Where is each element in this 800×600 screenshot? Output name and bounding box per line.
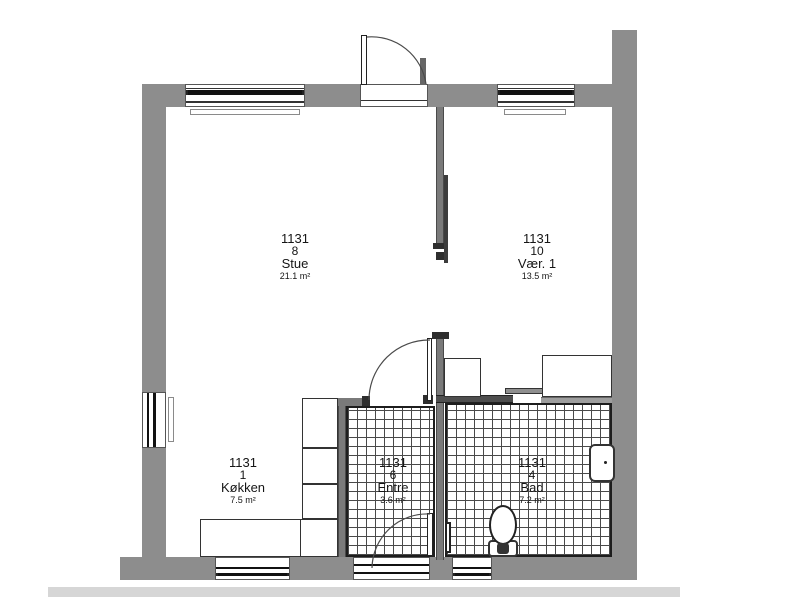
toilet-flush-knob bbox=[497, 543, 509, 554]
wall-right bbox=[612, 30, 637, 580]
entrance-door-leaf bbox=[427, 513, 433, 556]
balcony-door-opening bbox=[360, 84, 428, 107]
wall-entre-bad bbox=[436, 339, 444, 560]
window-stue-top bbox=[185, 84, 305, 107]
bad-door-leaf bbox=[445, 522, 451, 553]
stue-door-arc bbox=[369, 340, 430, 400]
radiator-vaer1 bbox=[504, 109, 566, 115]
wall-cap-center bbox=[432, 332, 449, 339]
wall-entre-left bbox=[338, 398, 346, 557]
room-name: Stue bbox=[245, 257, 345, 271]
kitchen-cabinet-3 bbox=[302, 484, 338, 519]
floor-plan-canvas: 1131 8 Stue 21.1 m² 1131 10 Vær. 1 13.5 … bbox=[0, 0, 800, 600]
sliding-door-leaf-stue-vaer1 bbox=[444, 175, 448, 263]
room-label-vaer1: 1131 10 Vær. 1 13.5 m² bbox=[487, 232, 587, 281]
window-vaer1-top bbox=[497, 84, 575, 107]
balcony-door-arc bbox=[367, 37, 426, 84]
window-left bbox=[142, 392, 166, 448]
room-area: 13.5 m² bbox=[487, 271, 587, 281]
room-area: 7.5 m² bbox=[193, 495, 293, 505]
toilet-bowl bbox=[489, 505, 517, 545]
wall-cap-entre-door bbox=[362, 396, 370, 406]
room-label-stue: 1131 8 Stue 21.1 m² bbox=[245, 232, 345, 281]
wall-stue-vaer1 bbox=[436, 107, 444, 246]
ground-strip bbox=[48, 587, 680, 597]
balcony-door-frame-post bbox=[420, 58, 426, 85]
window-bad-bottom bbox=[452, 557, 492, 580]
room-name: Bad bbox=[487, 481, 577, 495]
stue-door-leaf bbox=[427, 338, 432, 401]
room-label-entre: 1131 6 Entre 3.6 m² bbox=[348, 456, 438, 505]
wall-left bbox=[142, 84, 166, 580]
kitchen-counter-corner bbox=[300, 519, 338, 557]
room-area: 7.2 m² bbox=[487, 495, 577, 505]
room-name: Entre bbox=[348, 481, 438, 495]
kitchen-cabinet-2 bbox=[302, 448, 338, 484]
room-name: Køkken bbox=[193, 481, 293, 495]
room-name: Vær. 1 bbox=[487, 257, 587, 271]
entrance-door-opening bbox=[353, 557, 430, 580]
room-area: 3.6 m² bbox=[348, 495, 438, 505]
wardrobe-vaer1 bbox=[444, 358, 481, 397]
room-label-kokken: 1131 1 Køkken 7.5 m² bbox=[193, 456, 293, 505]
kitchen-cabinet-1 bbox=[302, 398, 338, 448]
room-label-bad: 1131 4 Bad 7.2 m² bbox=[487, 456, 577, 505]
sink-fixture bbox=[589, 444, 615, 482]
sink-drain-dot bbox=[604, 461, 607, 464]
balcony-door-leaf bbox=[361, 35, 367, 85]
kitchen-counter bbox=[200, 519, 301, 557]
room-area: 21.1 m² bbox=[245, 271, 345, 281]
bed-vaer1 bbox=[542, 355, 612, 397]
window-kokken-bottom bbox=[215, 557, 290, 580]
radiator-stue bbox=[190, 109, 300, 115]
radiator-left bbox=[168, 397, 174, 442]
